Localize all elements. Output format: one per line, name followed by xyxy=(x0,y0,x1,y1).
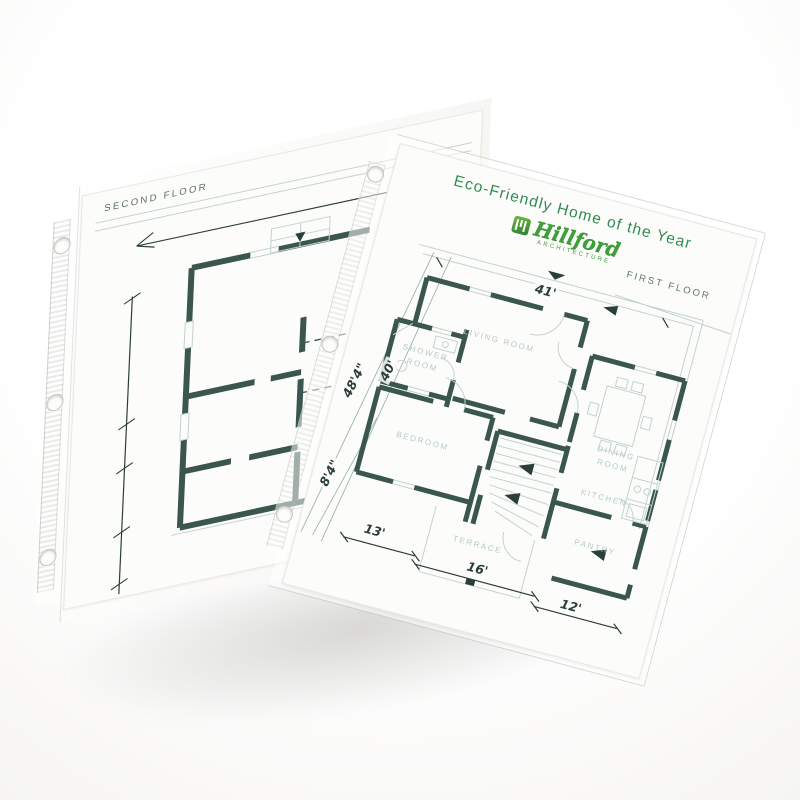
product-photo-scene: SECOND FLOOR xyxy=(0,0,800,800)
dimension-arrow-icon xyxy=(602,302,618,315)
door-arcs xyxy=(395,286,680,586)
dimension-line-left xyxy=(111,293,141,596)
